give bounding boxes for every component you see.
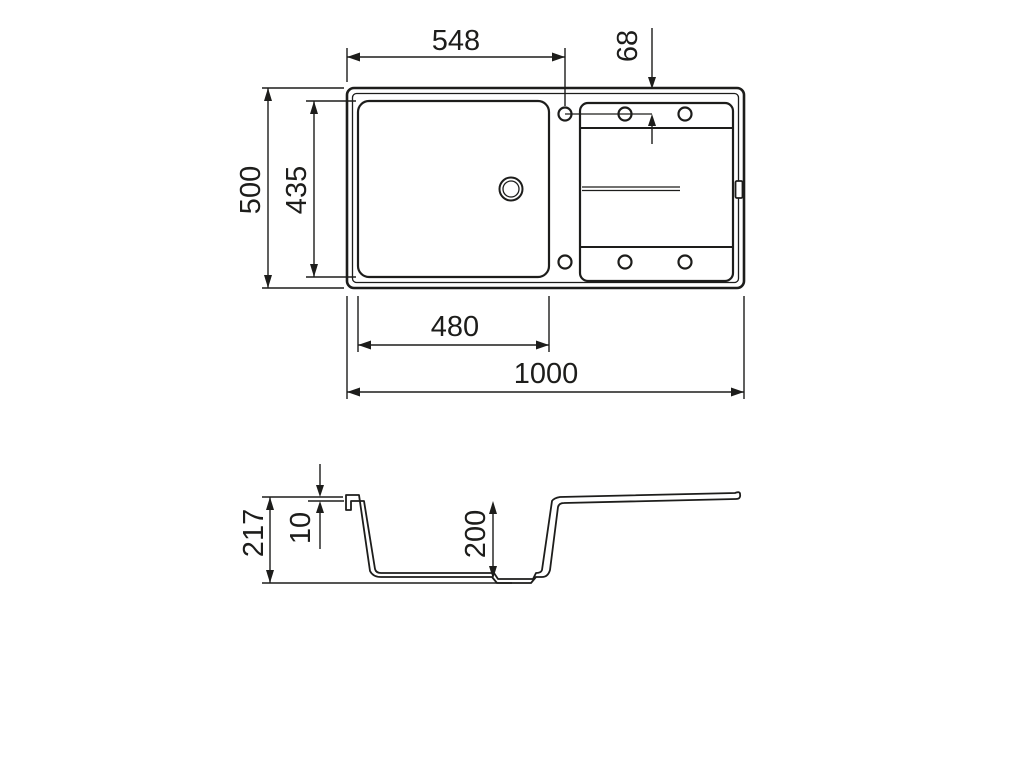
tap-hole	[619, 256, 632, 269]
top-view: 548 68 500 435	[235, 25, 744, 399]
overflow-slot	[736, 181, 743, 198]
dim-label-480: 480	[431, 311, 479, 343]
arrowhead	[648, 114, 656, 126]
arrowhead	[316, 485, 324, 497]
bowl-outline	[358, 101, 549, 277]
drainer-outline	[580, 103, 733, 281]
arrowhead	[552, 53, 565, 62]
dim-label-548: 548	[432, 25, 480, 57]
arrowhead	[347, 53, 360, 62]
arrowhead	[316, 501, 324, 513]
arrowhead	[264, 88, 272, 101]
dim-label-68: 68	[612, 30, 644, 62]
drain-hole	[500, 178, 523, 201]
drainer-grooves	[582, 187, 680, 191]
tap-hole	[679, 108, 692, 121]
dim-10: 10	[285, 464, 344, 549]
tap-holes	[559, 108, 692, 269]
arrowhead	[358, 341, 371, 350]
arrowhead	[731, 388, 744, 397]
dim-68: 68	[612, 28, 656, 144]
dim-435: 435	[281, 101, 356, 277]
tap-hole	[679, 256, 692, 269]
dim-label-500: 500	[235, 166, 267, 214]
arrowhead	[310, 264, 318, 277]
arrowhead	[266, 497, 274, 510]
outer-edge	[347, 88, 744, 288]
dim-label-435: 435	[281, 166, 313, 214]
arrowhead	[266, 570, 274, 583]
arrowhead	[536, 341, 549, 350]
dim-480: 480	[358, 296, 549, 352]
dim-200: 200	[460, 501, 497, 579]
rim-line	[353, 94, 739, 283]
dim-label-1000: 1000	[514, 358, 579, 390]
arrowhead	[347, 388, 360, 397]
dim-label-200: 200	[460, 510, 492, 558]
side-view: 217 10 200	[238, 464, 740, 583]
sink-technical-drawing: 548 68 500 435	[0, 0, 1024, 768]
sink-outline	[347, 88, 744, 288]
dim-label-10: 10	[285, 512, 317, 544]
tap-hole	[559, 256, 572, 269]
arrowhead	[264, 275, 272, 288]
side-profile	[346, 492, 740, 583]
dim-label-217: 217	[238, 509, 270, 557]
dim-1000: 1000	[347, 296, 744, 399]
arrowhead	[310, 101, 318, 114]
